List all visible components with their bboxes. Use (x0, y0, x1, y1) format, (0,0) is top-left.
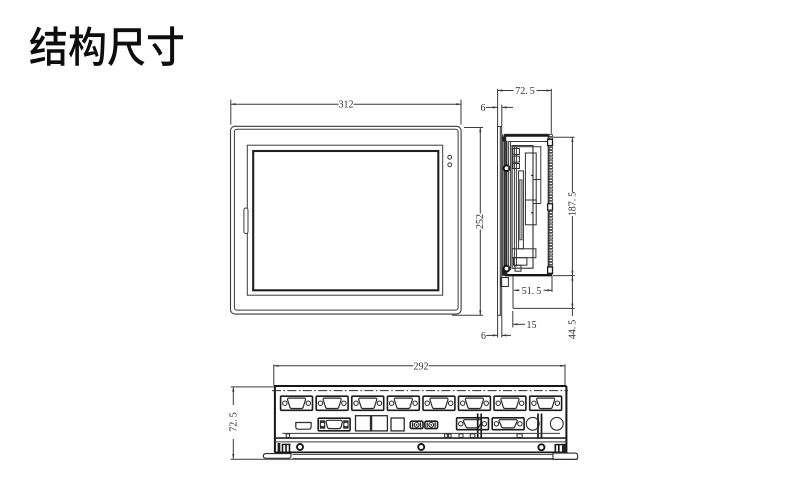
svg-text:6: 6 (481, 103, 486, 114)
svg-text:6: 6 (481, 331, 486, 342)
svg-text:72. 5: 72. 5 (515, 86, 535, 97)
svg-text:292: 292 (414, 361, 429, 372)
svg-text:187. 5: 187. 5 (567, 192, 578, 217)
svg-text:44. 5: 44. 5 (567, 320, 578, 340)
svg-text:72. 5: 72. 5 (228, 412, 239, 432)
svg-text:252: 252 (475, 214, 486, 229)
svg-text:51. 5: 51. 5 (522, 286, 542, 297)
svg-text:15: 15 (527, 320, 537, 331)
svg-text:312: 312 (339, 100, 354, 111)
